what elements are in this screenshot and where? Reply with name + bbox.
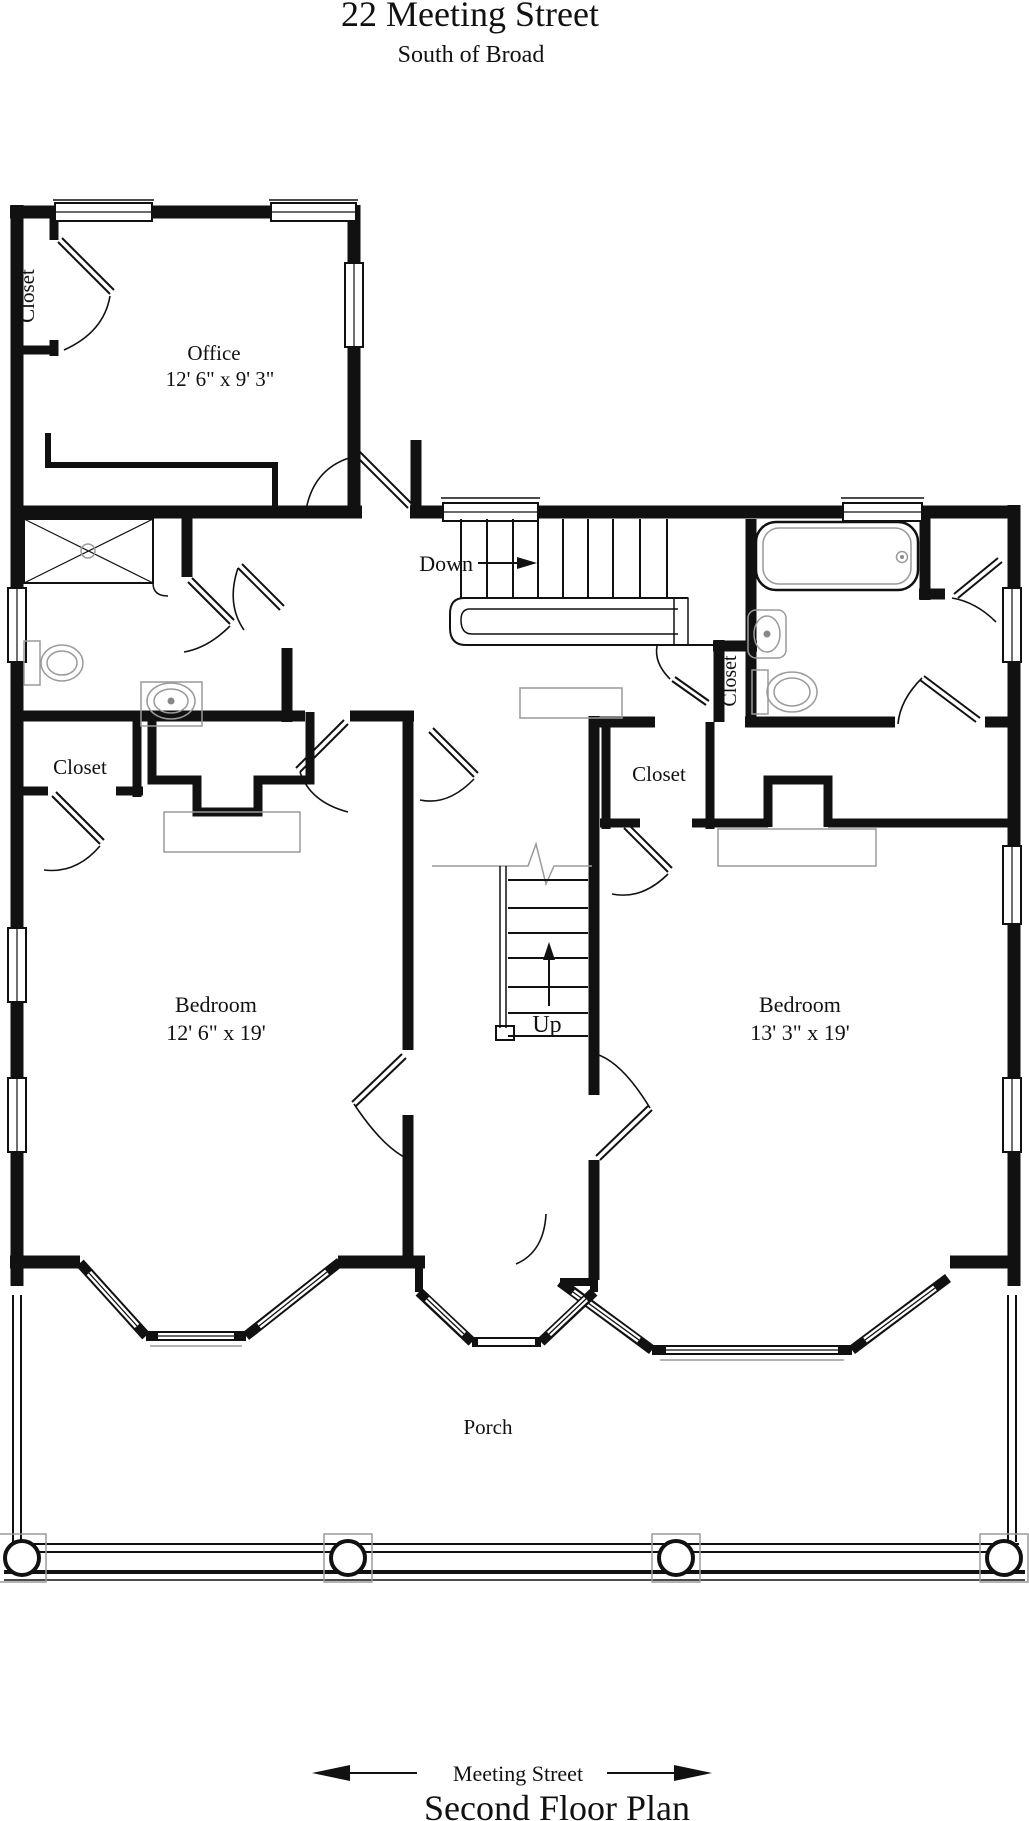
office-side-window: [345, 263, 363, 347]
left-hearth: [164, 812, 300, 852]
office-dims: 12' 6" x 9' 3": [166, 367, 275, 391]
down-label: Down: [419, 551, 473, 576]
entry-door-arc: [516, 1214, 546, 1264]
bathroom-window: [841, 498, 924, 521]
hall-closet-door: [657, 646, 709, 705]
center-hall-door: [420, 728, 478, 801]
toilet-left: [24, 641, 83, 685]
left-closet-label: Closet: [53, 755, 107, 779]
stair-hall-window: [441, 498, 540, 521]
shower: [24, 519, 168, 596]
west-window-3: [8, 1078, 26, 1152]
office-window-2: [269, 200, 358, 221]
page-subtitle: South of Broad: [398, 42, 545, 68]
bathtub: [756, 522, 918, 590]
office-window-1: [53, 200, 154, 221]
east-window-1: [1003, 588, 1021, 662]
bay-windows: [80, 1256, 948, 1360]
vestibule-door-right: [952, 558, 1002, 622]
right-bathroom-fixtures: [748, 522, 918, 714]
right-bedroom-label: Bedroom: [759, 992, 841, 1017]
left-bedroom-dims: 12' 6" x 19': [166, 1020, 265, 1045]
up-stairs: [432, 844, 592, 1040]
hall-closet-label: Closet: [719, 655, 741, 707]
entry-vestibule: [419, 1256, 594, 1342]
exterior-walls: [10, 205, 1014, 1286]
hall-dresser: [520, 688, 622, 718]
west-window-2: [8, 928, 26, 1002]
left-bedroom-door: [296, 720, 348, 812]
left-bay-window: [80, 1262, 340, 1346]
right-hearth: [718, 829, 876, 866]
left-bathroom-fixtures: [24, 519, 202, 726]
left-bathroom-door: [184, 578, 234, 652]
windows: [8, 200, 1021, 1152]
down-stairs: [450, 519, 713, 645]
office-label: Office: [187, 341, 240, 365]
left-bedroom-lower-door: [352, 1054, 406, 1158]
right-bay-window: [560, 1278, 948, 1360]
office-closet-door: [58, 238, 114, 350]
vestibule-door-left: [233, 564, 284, 630]
up-arrow: [543, 942, 555, 1006]
east-window-3: [1003, 1078, 1021, 1152]
porch-label: Porch: [464, 1415, 513, 1439]
plan-title: Second Floor Plan: [424, 1788, 690, 1821]
floor-plan-page: 22 Meeting Street South of Broad Closet …: [0, 0, 1029, 1821]
toilet-right: [752, 670, 817, 714]
street-arrow-left: [312, 1765, 417, 1781]
right-bedroom-dims: 13' 3" x 19': [750, 1020, 849, 1045]
doors: [44, 238, 1002, 1264]
right-closet-label: Closet: [632, 762, 686, 786]
east-window-2: [1003, 846, 1021, 924]
right-closet-door: [612, 824, 672, 895]
street-label: Meeting Street: [453, 1761, 583, 1786]
floor-plan-drawing: 22 Meeting Street South of Broad Closet …: [0, 0, 1029, 1821]
left-bedroom-label: Bedroom: [175, 992, 257, 1017]
right-bedroom-door: [596, 1054, 652, 1160]
up-label: Up: [532, 1012, 561, 1038]
page-title: 22 Meeting Street: [341, 0, 599, 34]
office-closet-label: Closet: [15, 269, 39, 323]
left-closet-door: [44, 792, 104, 871]
street-arrow-right: [607, 1765, 712, 1781]
porch-columns: [0, 1534, 1028, 1582]
right-bathroom-door: [898, 676, 980, 724]
